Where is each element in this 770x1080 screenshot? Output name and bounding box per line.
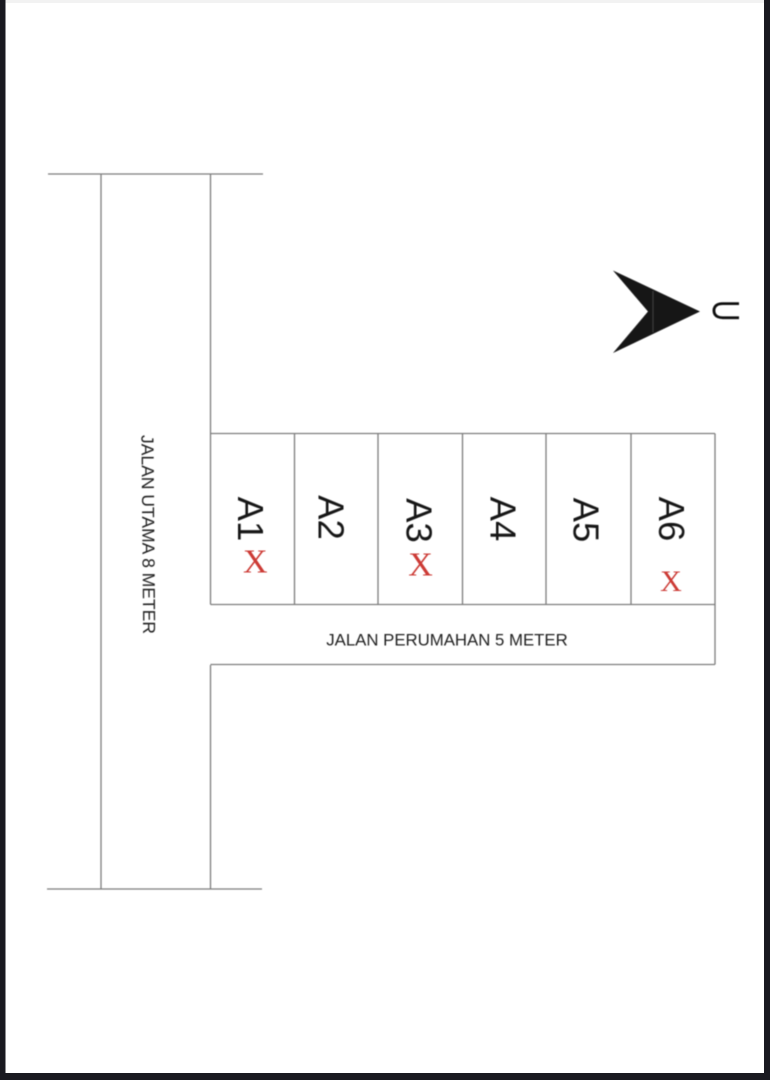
svg-text:A6: A6 (651, 497, 692, 542)
svg-text:U: U (704, 300, 746, 321)
svg-text:JALAN UTAMA 8 METER: JALAN UTAMA 8 METER (137, 435, 159, 634)
svg-text:X: X (660, 565, 682, 598)
svg-text:X: X (243, 543, 268, 580)
svg-text:A2: A2 (311, 495, 352, 540)
svg-text:A4: A4 (483, 497, 524, 542)
svg-text:X: X (408, 546, 433, 583)
svg-text:JALAN PERUMAHAN 5 METER: JALAN PERUMAHAN 5 METER (326, 630, 568, 649)
svg-text:A5: A5 (566, 498, 607, 543)
svg-text:A1: A1 (230, 497, 271, 542)
svg-text:A3: A3 (399, 498, 440, 543)
